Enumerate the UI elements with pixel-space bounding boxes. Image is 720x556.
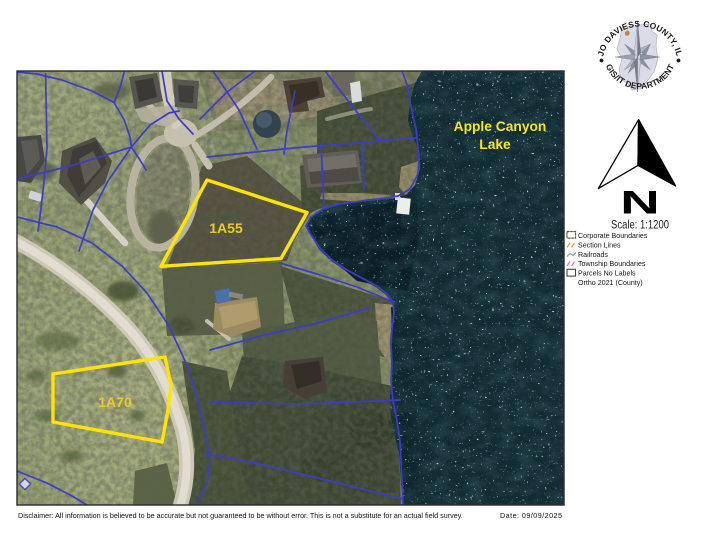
- svg-text:Date: 09/09/2025: Date: 09/09/2025: [500, 511, 562, 520]
- svg-text:Apple Canyon: Apple Canyon: [454, 119, 547, 134]
- svg-text:1A70: 1A70: [98, 394, 132, 410]
- svg-text:Scale: 1:1200: Scale: 1:1200: [611, 220, 669, 232]
- svg-text:N: N: [620, 184, 659, 221]
- svg-text:1A55: 1A55: [209, 220, 243, 236]
- svg-text:Corporate Boundaries: Corporate Boundaries: [578, 232, 648, 240]
- svg-text:Parcels No Labels: Parcels No Labels: [578, 269, 636, 277]
- svg-text:Disclaimer: All information is: Disclaimer: All information is believed …: [18, 511, 463, 520]
- svg-text:Section Lines: Section Lines: [578, 242, 621, 250]
- svg-text:Lake: Lake: [479, 137, 511, 152]
- svg-text:Township Boundaries: Township Boundaries: [578, 260, 646, 268]
- svg-text:Railroads: Railroads: [578, 251, 608, 259]
- svg-text:Ortho 2021 (County): Ortho 2021 (County): [578, 279, 643, 287]
